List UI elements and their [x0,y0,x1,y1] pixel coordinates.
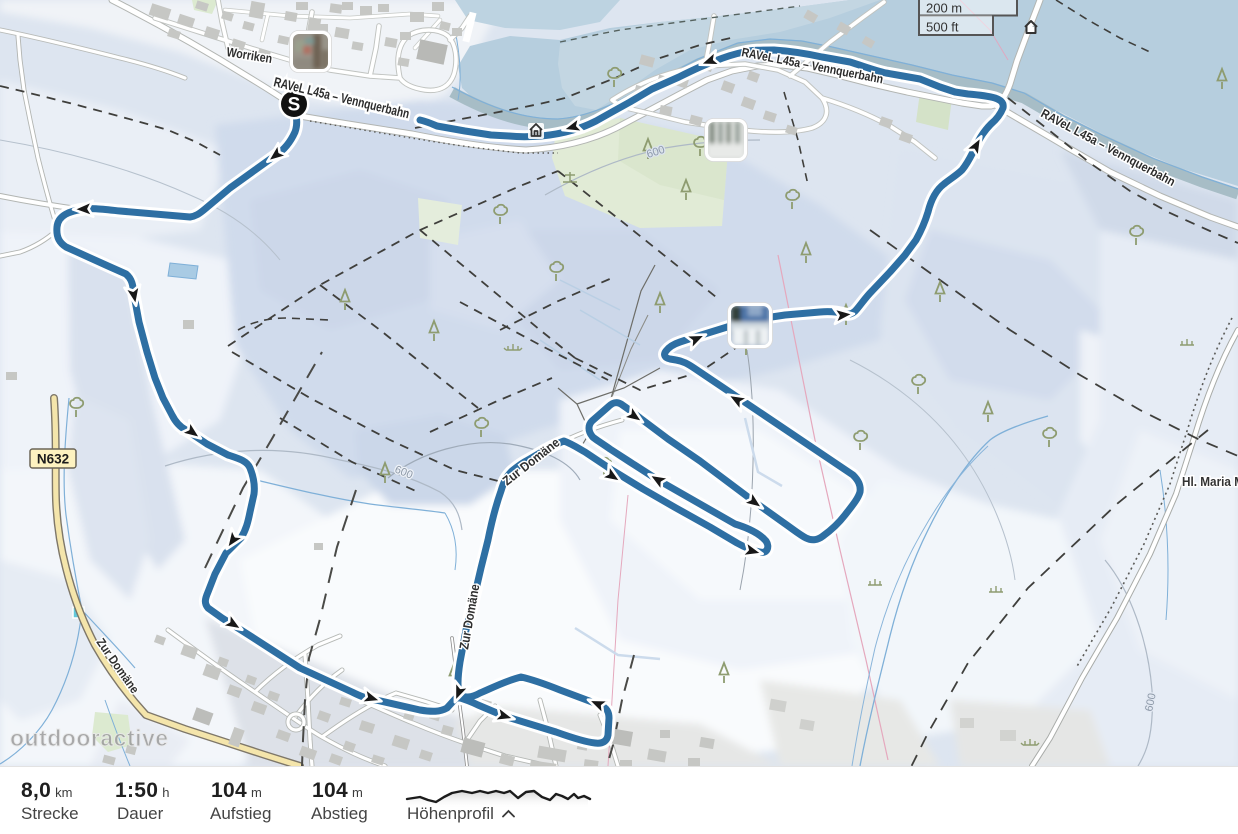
svg-text:N632: N632 [37,452,69,467]
svg-text:outdooractive: outdooractive [10,725,169,751]
svg-text:Hl. Maria M: Hl. Maria M [1182,475,1238,489]
svg-text:500 ft: 500 ft [926,20,959,35]
svg-text:S: S [288,95,301,116]
svg-text:200 m: 200 m [926,1,962,16]
